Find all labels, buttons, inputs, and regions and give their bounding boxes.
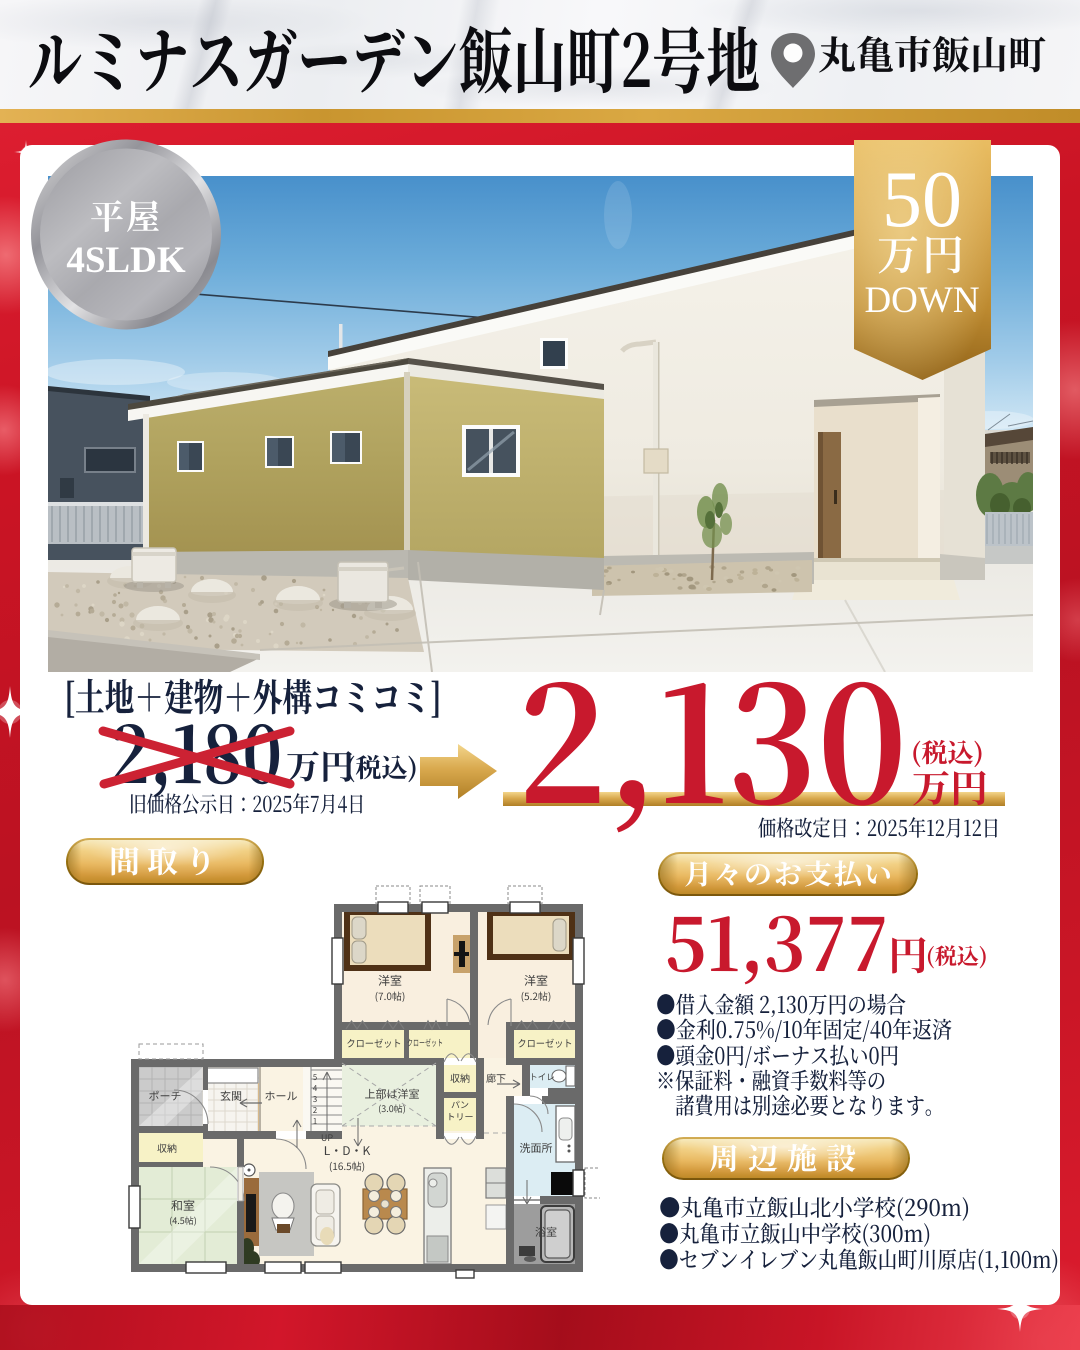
svg-text:4SLDK: 4SLDK: [66, 240, 185, 281]
svg-text:50: 50: [882, 156, 962, 244]
svg-text:DOWN: DOWN: [864, 280, 979, 321]
